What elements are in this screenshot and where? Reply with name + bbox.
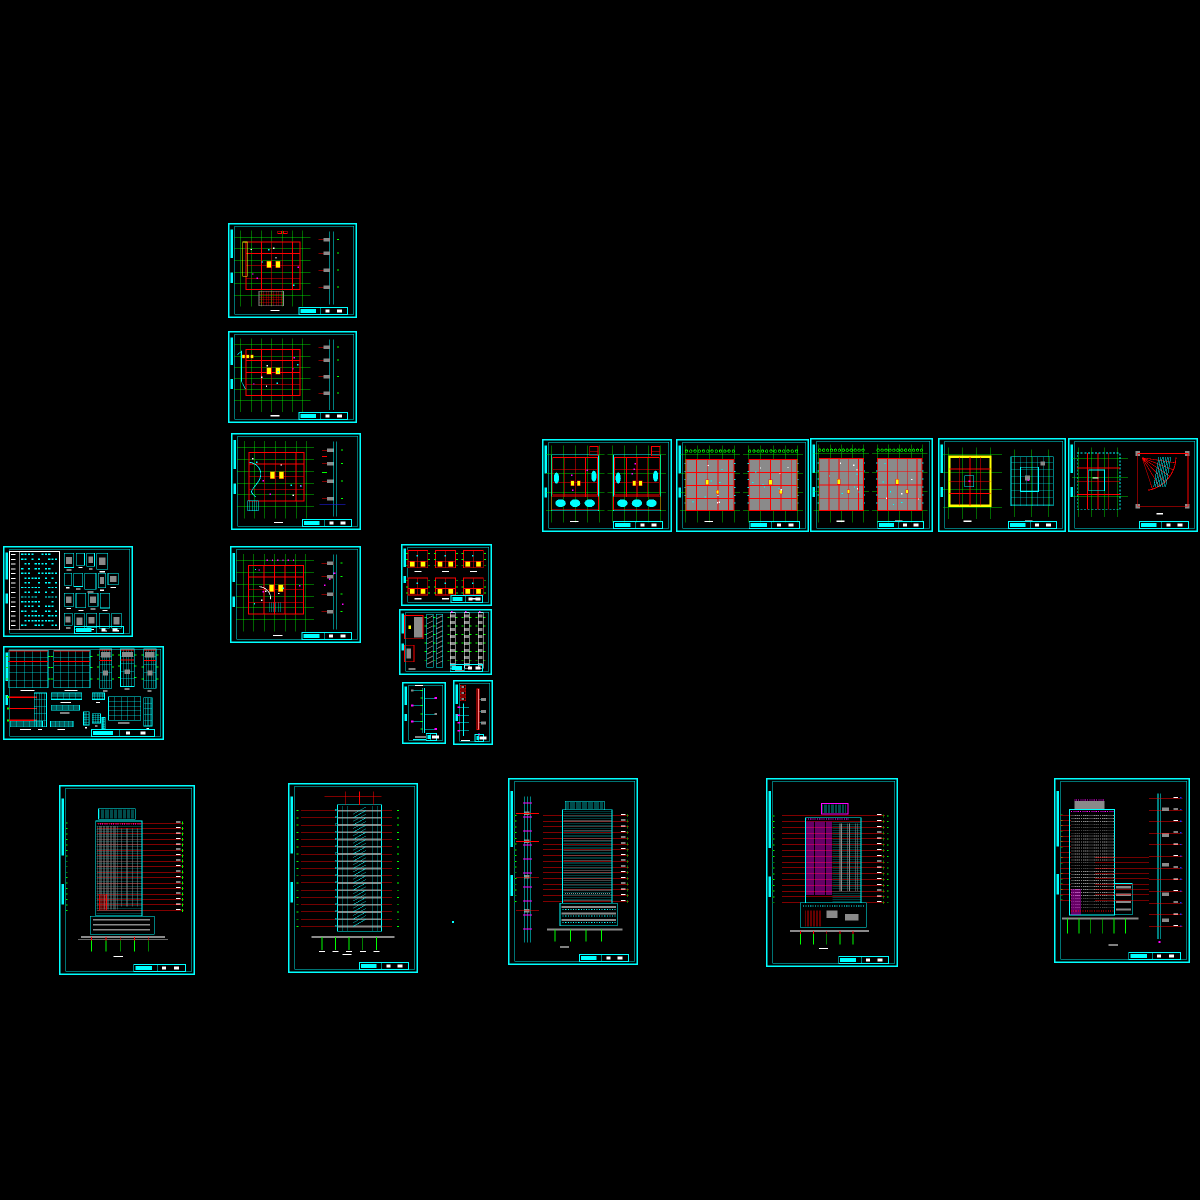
sheet-building-elevation-3[interactable] <box>766 778 898 967</box>
sheet-door-window-schedule[interactable] <box>3 546 133 637</box>
drawing-section-1 <box>288 783 418 973</box>
sheet-window-detail-sheet[interactable] <box>3 646 164 740</box>
sheet-building-elevation-1[interactable] <box>59 785 195 975</box>
sheet-floor-plan-sheet-3[interactable] <box>231 433 361 530</box>
drawing-schedule <box>3 546 133 637</box>
drawing-plan-fan <box>1068 438 1198 532</box>
sheet-floor-plan-sheet-4[interactable] <box>230 546 361 643</box>
sheet-building-elevation-4[interactable] <box>1054 778 1190 963</box>
drawing-plan-03 <box>231 433 361 530</box>
cad-model-space <box>0 0 1200 1200</box>
drawing-strip-detail-2 <box>453 680 493 745</box>
sheet-floor-plan-sheet-1[interactable] <box>228 223 357 318</box>
sheet-section-detail-2[interactable] <box>453 680 493 745</box>
sheet-roof-plan-pair[interactable] <box>938 438 1066 532</box>
stray-point <box>452 921 454 923</box>
drawing-strip-detail-1 <box>402 682 446 744</box>
drawing-plan-04 <box>230 546 361 643</box>
drawing-stair-details <box>399 609 492 675</box>
drawing-elev-3 <box>766 778 898 967</box>
drawing-window-details <box>3 646 164 740</box>
sheet-paired-floor-plans-1[interactable] <box>542 439 672 532</box>
drawing-elev-1 <box>59 785 195 975</box>
drawing-roof-plans <box>938 438 1066 532</box>
sheet-paired-floor-plans-3[interactable] <box>810 438 933 532</box>
drawing-plan-pair-2 <box>676 439 809 532</box>
drawing-plan-02 <box>228 331 357 423</box>
sheet-section-detail-1[interactable] <box>402 682 446 744</box>
drawing-plan-01 <box>228 223 357 318</box>
drawing-elev-4 <box>1054 778 1190 963</box>
drawing-detail-grid <box>401 544 492 606</box>
sheet-paired-floor-plans-2[interactable] <box>676 439 809 532</box>
drawing-plan-pair-1 <box>542 439 672 532</box>
sheet-plan-and-fan-detail[interactable] <box>1068 438 1198 532</box>
sheet-building-elevation-2[interactable] <box>508 778 638 965</box>
sheet-building-section[interactable] <box>288 783 418 973</box>
sheet-stair-detail-sheet[interactable] <box>399 609 492 675</box>
sheet-plan-detail-grid[interactable] <box>401 544 492 606</box>
drawing-plan-pair-3 <box>810 438 933 532</box>
drawing-elev-2 <box>508 778 638 965</box>
sheet-floor-plan-sheet-2[interactable] <box>228 331 357 423</box>
